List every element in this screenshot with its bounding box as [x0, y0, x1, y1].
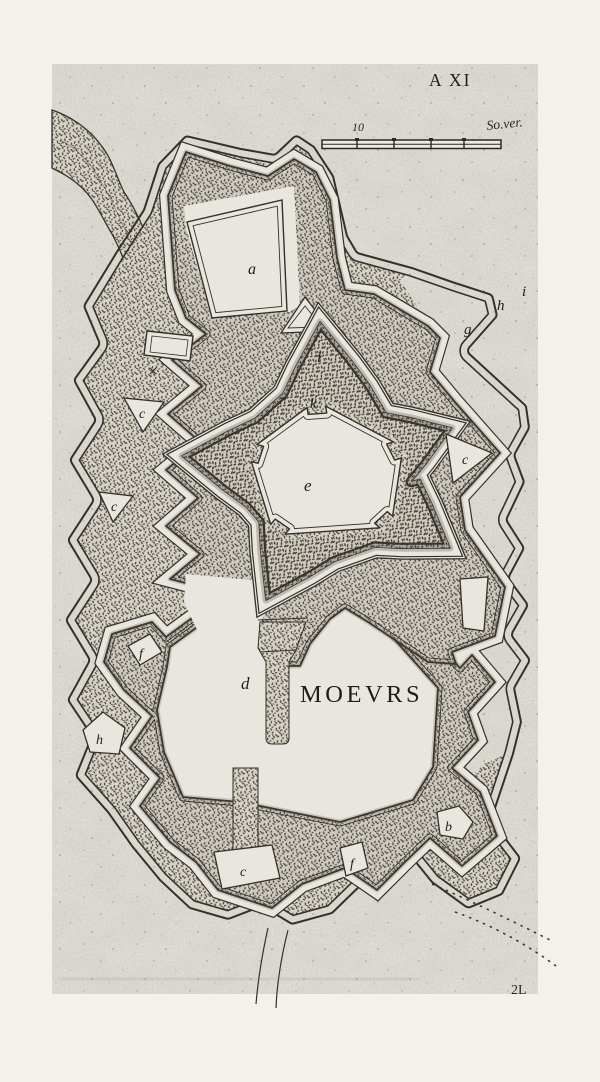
- svg-text:c: c: [240, 865, 247, 880]
- svg-text:k: k: [310, 396, 317, 412]
- svg-text:A XI: A XI: [429, 70, 472, 90]
- svg-text:e: e: [304, 476, 312, 495]
- svg-text:c: c: [111, 500, 118, 515]
- svg-text:2L: 2L: [511, 983, 527, 998]
- svg-text:MOEVRS: MOEVRS: [300, 681, 423, 708]
- svg-text:c: c: [139, 407, 146, 422]
- svg-text:b: b: [445, 820, 452, 835]
- svg-text:i: i: [522, 284, 526, 300]
- svg-text:c: c: [462, 453, 469, 468]
- svg-text:a: a: [248, 261, 256, 278]
- svg-text:h: h: [497, 298, 505, 314]
- svg-text:l: l: [317, 350, 321, 366]
- svg-text:10: 10: [352, 120, 364, 134]
- svg-text:d: d: [241, 674, 250, 693]
- svg-text:g: g: [464, 322, 472, 338]
- svg-text:h: h: [96, 733, 103, 748]
